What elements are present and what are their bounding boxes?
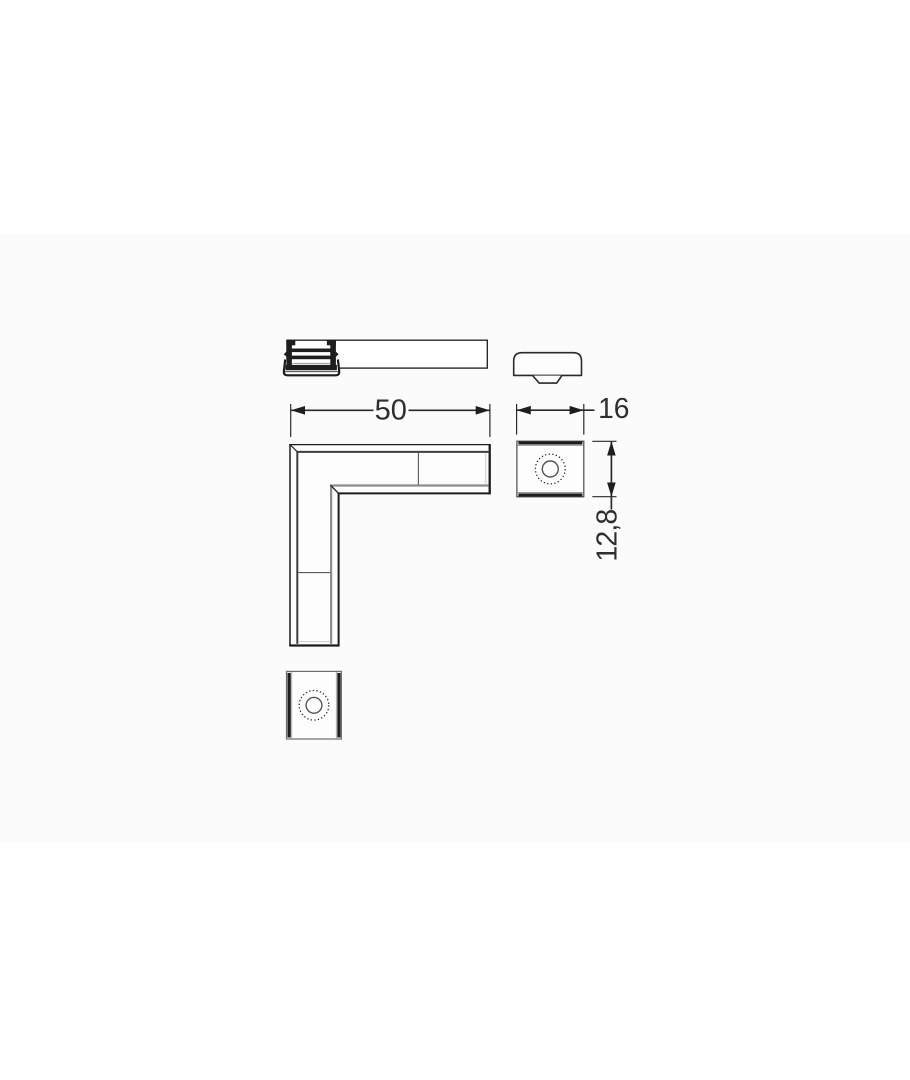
svg-text:50: 50 [375, 394, 407, 426]
svg-text:16: 16 [598, 393, 629, 425]
svg-text:12,8: 12,8 [592, 510, 624, 562]
